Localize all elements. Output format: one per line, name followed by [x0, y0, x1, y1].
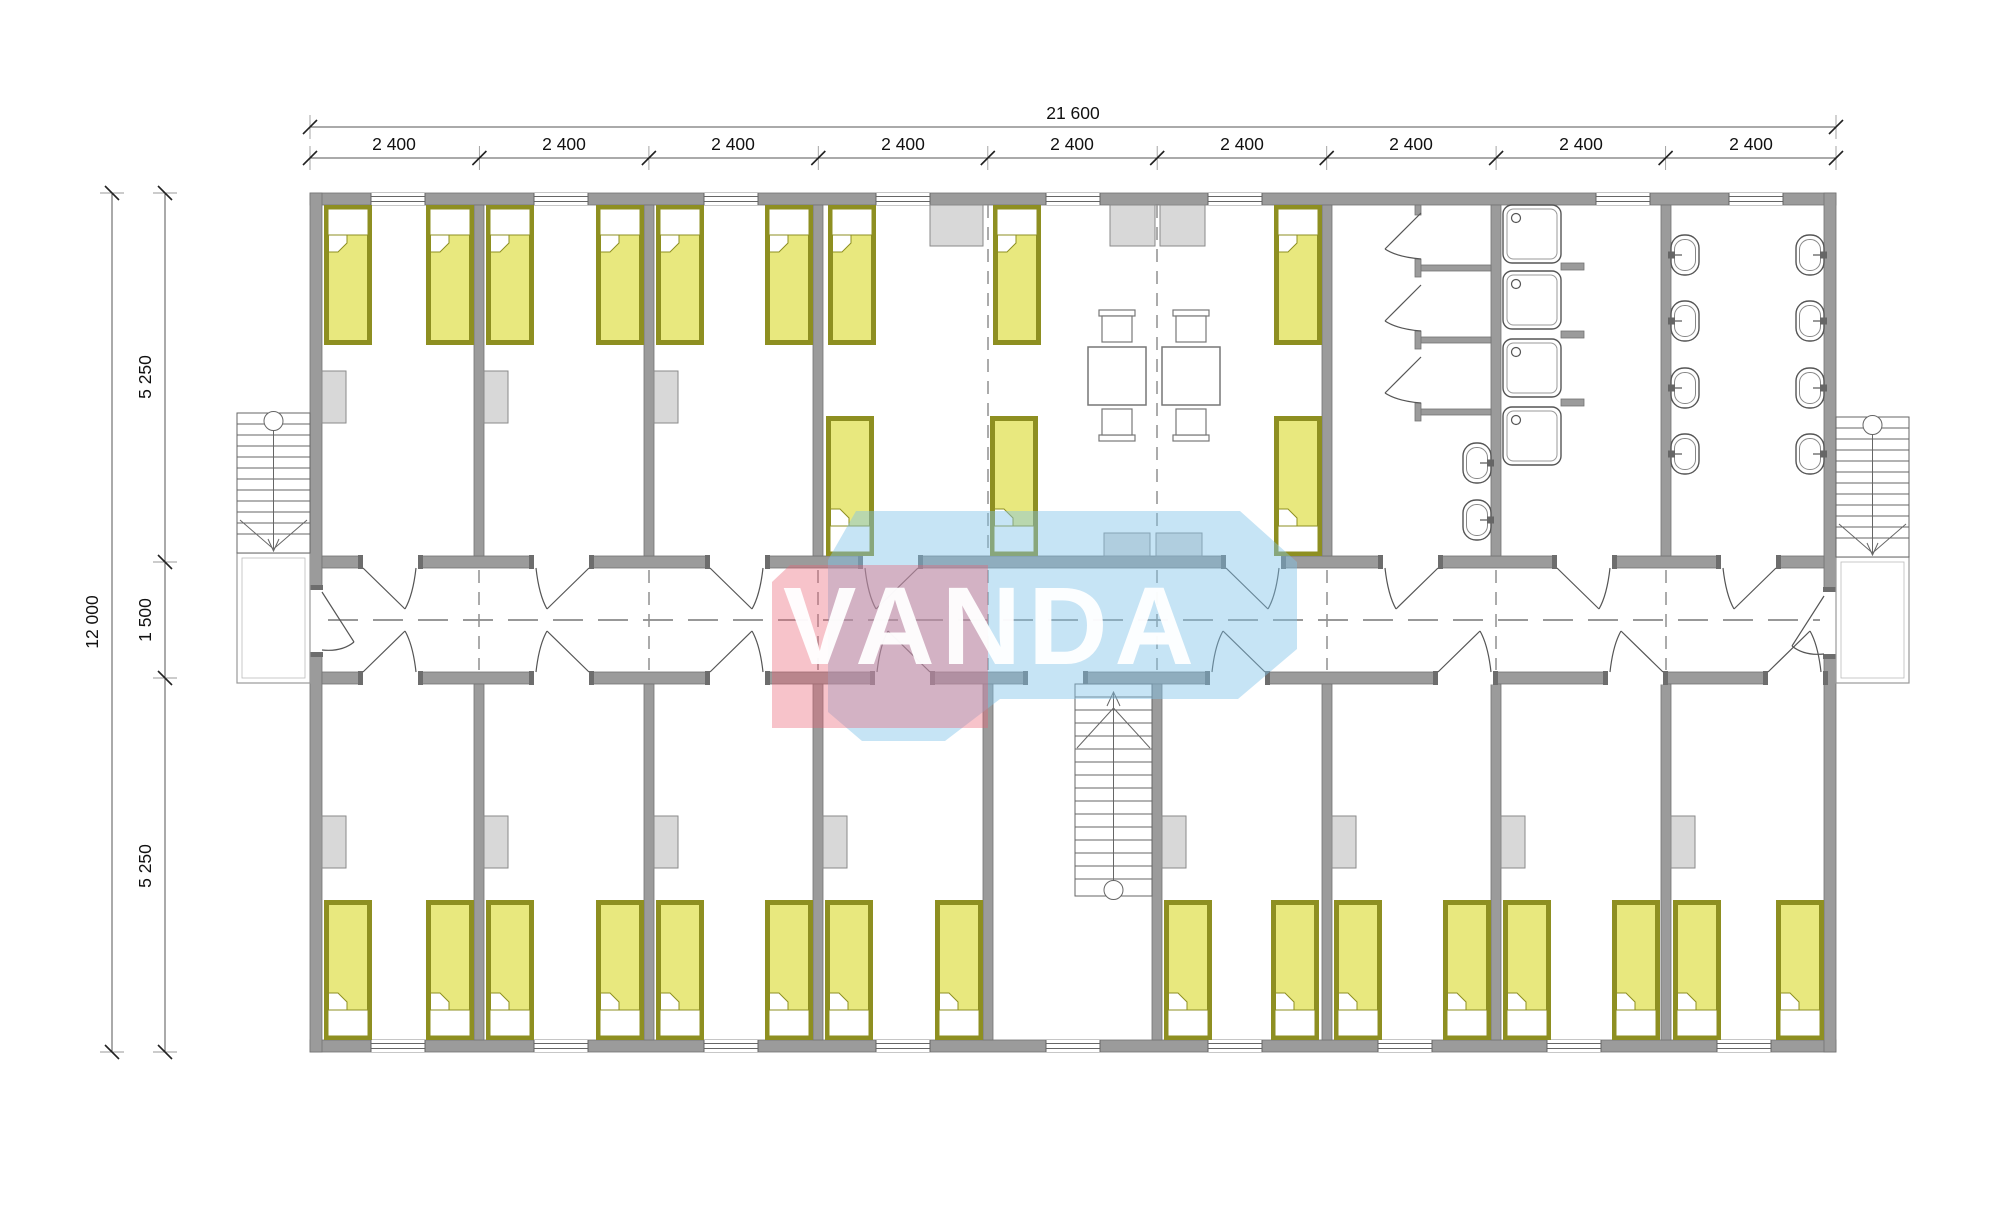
dim-bay-4: 2 400	[881, 134, 925, 154]
chair	[1099, 409, 1135, 441]
wash-basin	[1796, 235, 1827, 275]
window	[876, 1040, 930, 1052]
wash-basin	[1796, 301, 1827, 341]
bed	[828, 205, 876, 345]
wardrobe	[1501, 816, 1525, 868]
wash-basin	[1796, 368, 1827, 408]
bed	[324, 900, 372, 1040]
wash-basin	[1668, 434, 1699, 474]
bed	[765, 205, 813, 345]
wardrobe	[1162, 816, 1186, 868]
window	[1596, 193, 1650, 205]
bed	[656, 205, 704, 345]
dim-total-width: 21 600	[1046, 103, 1100, 123]
wardrobe	[484, 371, 508, 423]
dim-bay-9: 2 400	[1729, 134, 1773, 154]
wardrobe	[1110, 205, 1155, 246]
window	[1378, 1040, 1432, 1052]
window	[1717, 1040, 1771, 1052]
dim-depth-2: 1 500	[135, 598, 155, 642]
bed	[993, 205, 1041, 345]
bed	[1776, 900, 1824, 1040]
window	[534, 1040, 588, 1052]
dining-table	[1162, 347, 1220, 405]
window	[1729, 193, 1783, 205]
wash-basin	[1796, 434, 1827, 474]
window	[1208, 1040, 1262, 1052]
window	[1046, 193, 1100, 205]
bed	[825, 900, 873, 1040]
wardrobe	[930, 205, 983, 246]
bed	[426, 205, 474, 345]
wash-basin	[1668, 301, 1699, 341]
window	[371, 1040, 425, 1052]
bed	[324, 205, 372, 345]
staircase-internal	[1075, 684, 1152, 900]
bed	[1274, 205, 1322, 345]
bed	[1271, 900, 1319, 1040]
dim-bay-1: 2 400	[372, 134, 416, 154]
window	[876, 193, 930, 205]
bed	[1164, 900, 1212, 1040]
wash-basin	[1668, 368, 1699, 408]
wardrobe	[1160, 205, 1205, 246]
bed	[1334, 900, 1382, 1040]
window	[371, 193, 425, 205]
dim-bay-2: 2 400	[542, 134, 586, 154]
wash-basin	[1463, 443, 1494, 483]
wash-basin	[1463, 500, 1494, 540]
dim-bay-3: 2 400	[711, 134, 755, 154]
bed	[656, 900, 704, 1040]
window	[704, 1040, 758, 1052]
vanda-watermark-text: VANDA	[783, 565, 1201, 688]
bed	[1443, 900, 1491, 1040]
staircase-right	[1836, 416, 1909, 684]
window	[1046, 1040, 1100, 1052]
dim-bay-8: 2 400	[1559, 134, 1603, 154]
window	[1547, 1040, 1601, 1052]
shower-tray	[1503, 271, 1561, 329]
bed	[596, 900, 644, 1040]
wardrobe	[484, 816, 508, 868]
wardrobe	[322, 816, 346, 868]
dim-bay-5: 2 400	[1050, 134, 1094, 154]
bed	[1612, 900, 1660, 1040]
bed	[486, 900, 534, 1040]
dim-bay-6: 2 400	[1220, 134, 1264, 154]
dim-bay-7: 2 400	[1389, 134, 1433, 154]
chair	[1173, 310, 1209, 342]
shower-tray	[1503, 339, 1561, 397]
bed	[596, 205, 644, 345]
window	[1208, 193, 1262, 205]
dining-table	[1088, 347, 1146, 405]
wardrobe	[654, 371, 678, 423]
bed	[765, 900, 813, 1040]
wardrobe	[1332, 816, 1356, 868]
window	[534, 193, 588, 205]
wash-basin	[1668, 235, 1699, 275]
wardrobe	[322, 371, 346, 423]
chair	[1099, 310, 1135, 342]
bed	[426, 900, 474, 1040]
wardrobe	[1671, 816, 1695, 868]
shower-tray	[1503, 205, 1561, 263]
dim-depth-1: 5 250	[135, 355, 155, 399]
chair	[1173, 409, 1209, 441]
bed	[1673, 900, 1721, 1040]
wardrobe	[823, 816, 847, 868]
dim-total-depth: 12 000	[82, 595, 102, 649]
staircase-left	[237, 412, 310, 684]
bed	[486, 205, 534, 345]
window	[704, 193, 758, 205]
dim-depth-3: 5 250	[135, 844, 155, 888]
wardrobe	[654, 816, 678, 868]
floor-plan-drawing: 21 600 2 400 2 400 2 400 2 400 2 400 2 4…	[0, 0, 2000, 1219]
bed	[1274, 416, 1322, 556]
bed	[1503, 900, 1551, 1040]
shower-tray	[1503, 407, 1561, 465]
bed	[935, 900, 983, 1040]
